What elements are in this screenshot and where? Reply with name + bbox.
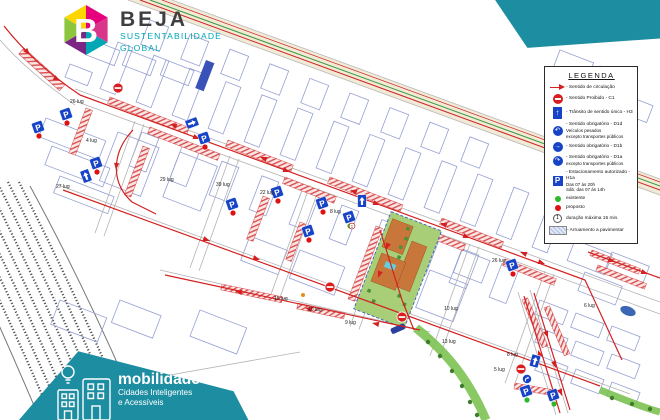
building-large-icon [83, 379, 110, 420]
legend-sublabel: Sáb. das 07 às 14h [566, 187, 634, 193]
no-entry-sign-icon [113, 83, 123, 93]
max-duration-badge-icon [349, 223, 355, 229]
parking-count-label: 5 lug [494, 367, 505, 373]
no-entry-sign-icon [516, 364, 526, 374]
proposed-dot [275, 198, 280, 203]
no-entry-icon [553, 94, 563, 104]
legend-label: - Estacionamento autorizado - H1a [566, 170, 634, 182]
parking-count-label: 39 lug [216, 182, 230, 188]
logo-b-letter: B [74, 12, 98, 49]
proposed-dot [510, 271, 515, 276]
one-way-sign-icon [185, 117, 200, 130]
proposed-dot [64, 120, 69, 125]
brand-sub1: SUSTENTABILIDADE [120, 32, 222, 42]
legend-label: - Sentido de circulação [566, 85, 615, 91]
parking-count-label: 15 lug [274, 296, 288, 302]
mandatory-turn-icon [553, 156, 563, 166]
parking-sign-icon [197, 131, 211, 145]
parking-count-label: 27 lug [56, 184, 70, 190]
banner-sub1: Cidades Inteligentes [118, 388, 200, 398]
legend-label: existente [566, 196, 585, 202]
legend-label: proposto [566, 205, 585, 211]
lightbulb-icon [62, 366, 74, 383]
existing-dot-icon [555, 196, 561, 202]
mandatory-direction-sign-icon [522, 374, 531, 383]
proposed-dot-icon [555, 205, 561, 211]
proposed-dot [320, 209, 325, 214]
mandatory-ahead-icon [553, 142, 563, 152]
parking-count-label: 9 lug [345, 320, 356, 326]
beja-logo: B BEJA SUSTENTABILIDADE GLOBAL [60, 3, 222, 57]
legend-box: LEGENDA - Sentido de circulação - Sentid… [544, 66, 638, 244]
parking-count-label: 10 lug [308, 307, 322, 313]
one-way-sign-icon [529, 354, 541, 369]
parking-count-label: 22 lug [260, 190, 274, 196]
legend-label: - Trânsito de sentido único - H3 [566, 110, 633, 116]
parking-sign-icon [342, 210, 356, 224]
legend-title: LEGENDA [549, 71, 634, 80]
pond [619, 304, 637, 318]
no-entry-sign-icon [397, 312, 407, 322]
proposed-dot [306, 237, 311, 242]
proposed-dot [94, 169, 99, 174]
legend-label: - Sentido obrigatório - D1b [566, 144, 622, 150]
legend-sublabel: excepto transportes públicos [566, 134, 623, 140]
parking-count-label: 8 lug [330, 209, 341, 215]
parking-icon [553, 176, 563, 186]
parking-count-label: 6 lug [584, 303, 595, 309]
max-duration-icon [553, 214, 562, 223]
legend-sublabel: excepto transportes públicos [566, 161, 623, 167]
brand-sub2: GLOBAL [120, 44, 222, 54]
signal-dot [301, 293, 305, 297]
beja-logo-icon: B [60, 3, 112, 57]
one-way-icon [553, 107, 562, 119]
existing-dot [551, 401, 556, 406]
mandatory-left-icon [553, 126, 563, 136]
poster-canvas: P 1 [0, 0, 660, 420]
parking-count-label: 13 lug [442, 339, 456, 345]
legend-label: duração máxima 15 min. [566, 216, 619, 222]
one-way-sign-icon [80, 169, 93, 184]
building-small-icon [58, 390, 78, 420]
direction-arrow-icon [550, 84, 565, 91]
parking-count-label: 4 lug [86, 138, 97, 144]
banner-sub2: e Acessíveis [118, 398, 200, 408]
parking-count-label: 8 lug [507, 352, 518, 358]
proposed-dot [36, 133, 41, 138]
parking-count-label: 26 lug [492, 258, 506, 264]
parking-sign-icon [89, 156, 103, 170]
proposed-dot [230, 210, 235, 215]
existing-dot [524, 397, 529, 402]
parking-sign-icon [31, 120, 45, 134]
legend-label: - Arruamento a pavimentar [567, 228, 624, 234]
one-way-sign-icon [358, 195, 367, 208]
brand-name: BEJA [120, 9, 222, 30]
legend-label: - Sentido Proibido - C1 [566, 96, 615, 102]
parking-count-label: 26 lug [70, 99, 84, 105]
parking-sign-icon [59, 107, 73, 121]
proposed-dot [202, 144, 207, 149]
blue-building [195, 60, 214, 91]
parking-count-label: 10 lug [444, 306, 458, 312]
park-block [354, 212, 442, 328]
no-entry-sign-icon [325, 282, 335, 292]
parking-count-label: 29 lug [160, 177, 174, 183]
pavement-swatch-icon [549, 226, 567, 235]
